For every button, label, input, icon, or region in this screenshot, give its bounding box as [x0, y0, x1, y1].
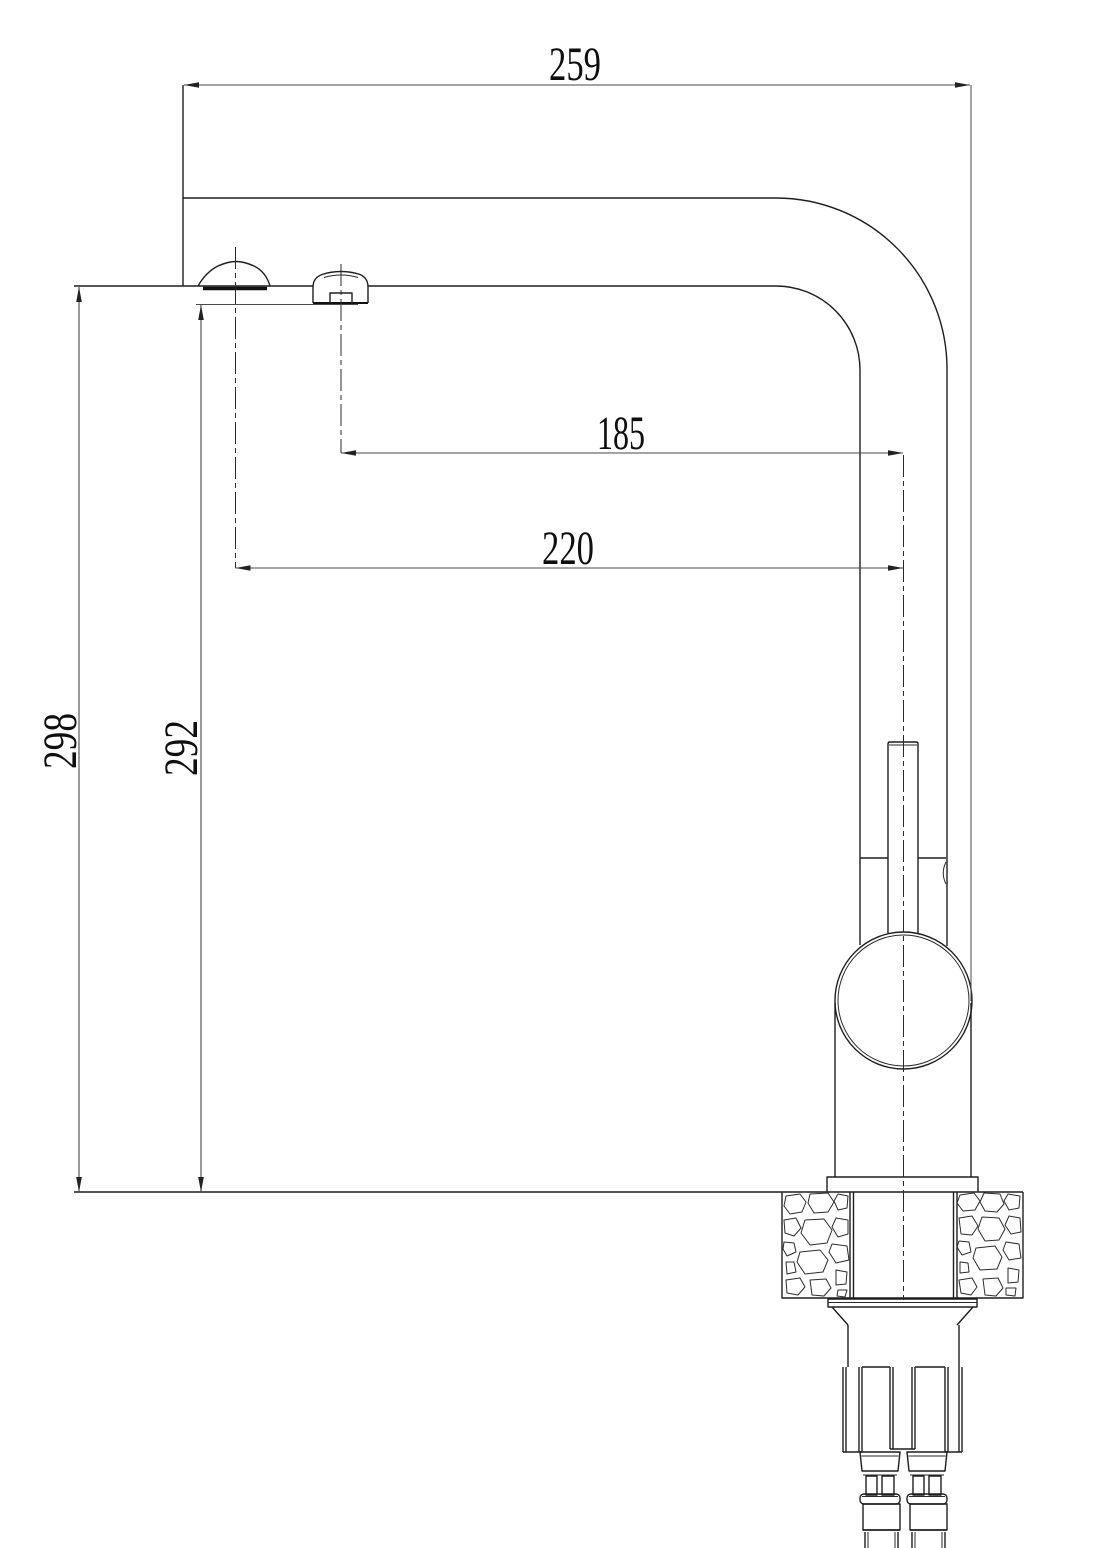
stud-middle: [890, 1367, 915, 1449]
arrowhead-left: [341, 450, 356, 456]
base-flange: [827, 1177, 978, 1192]
arrowhead-right: [888, 450, 903, 456]
dimension-aerator-to-axis: 220: [236, 522, 904, 575]
dim-label-spray-to-axis: 185: [597, 407, 645, 460]
mounting-nut: [832, 1307, 973, 1367]
arrowhead-left: [184, 82, 199, 88]
centerlines: [236, 247, 904, 1300]
mounting-studs: [843, 1367, 962, 1452]
supply-hose-right: [907, 1452, 947, 1548]
dimension-height-spout: 298: [34, 287, 87, 1192]
stone-hatch-right: [957, 1193, 1021, 1296]
countertop-cross-section: [74, 1192, 1023, 1298]
dim-label-aerator-to-axis: 220: [542, 522, 594, 575]
mounting-washer: [828, 1299, 977, 1307]
arrowhead-left: [236, 565, 251, 571]
dimension-overall-depth: 259: [184, 38, 971, 1001]
joint-detail-arc: [943, 862, 946, 884]
dimension-spray-to-axis: 185: [341, 407, 903, 460]
arrowhead-right: [888, 565, 903, 571]
aerator-outlet: [198, 262, 270, 289]
drawing-page: 259 185 220 298 292: [0, 0, 1096, 1548]
faucet-technical-drawing: 259 185 220 298 292: [0, 0, 1096, 1548]
arrowhead-up: [76, 287, 82, 302]
supply-hose-left: [860, 1452, 900, 1548]
arrowhead-down: [198, 1177, 204, 1192]
mounting-hardware: [828, 1299, 977, 1548]
stone-hatch-left: [783, 1193, 849, 1297]
arrowhead-down: [76, 1177, 82, 1192]
arrowhead-up: [198, 305, 204, 320]
dimension-height-spray: 292: [155, 305, 358, 1193]
dim-label-height-spray: 292: [155, 720, 208, 776]
stud-right: [945, 1367, 962, 1452]
stud-left: [843, 1367, 862, 1452]
countertop-slab: [782, 1192, 1023, 1298]
body-column: [827, 1003, 978, 1192]
dim-label-height-spout: 298: [34, 713, 87, 769]
arrowhead-right: [955, 82, 970, 88]
spout-inner-profile: [74, 286, 860, 945]
aerator-dome: [198, 262, 270, 287]
faucet-outline: [74, 85, 947, 946]
dim-label-overall-depth: 259: [549, 38, 601, 91]
